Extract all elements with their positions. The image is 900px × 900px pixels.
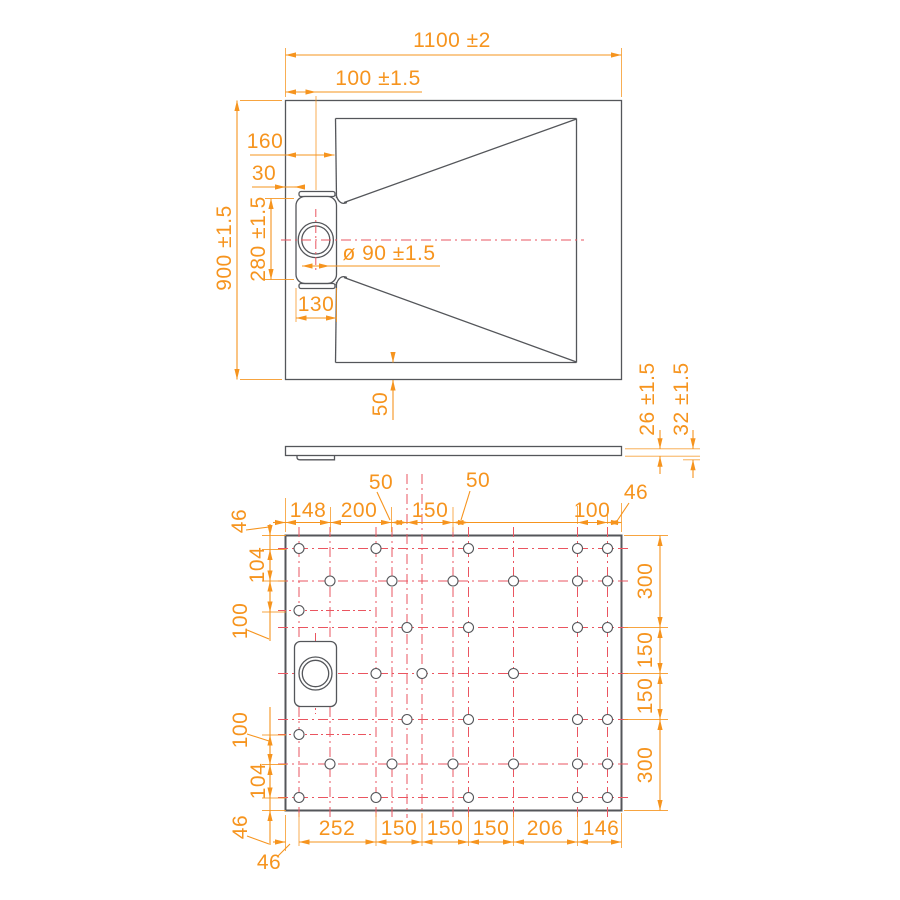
mounting-hole (371, 544, 381, 554)
mounting-hole (603, 715, 613, 725)
dim-label: 104 (247, 763, 270, 800)
dim-label: 150 (634, 632, 657, 669)
dim-label: 146 (583, 817, 620, 840)
dim-label-drain-offset: 100 ±1.5 (335, 67, 421, 90)
left-dimension-chain: 46 104 100 100 104 46 (228, 509, 286, 845)
mounting-hole (603, 793, 613, 803)
mounting-hole (448, 759, 458, 769)
slope-diagonal-top (344, 119, 577, 203)
mounting-hole (371, 669, 381, 679)
dim-label-drain-diameter: ø 90 ±1.5 (342, 242, 435, 265)
dim-label: 100 (574, 499, 611, 522)
dim-label: 150 (634, 678, 657, 715)
mounting-hole (325, 759, 335, 769)
dim-label-recess-height: 280 ±1.5 (247, 196, 270, 282)
tray-profile (286, 447, 622, 456)
mounting-hole (387, 759, 397, 769)
mounting-hole (464, 623, 474, 633)
technical-drawing-canvas: 1100 ±2 100 ±1.5 160 30 900 ±1.5 280 ±1.… (0, 0, 900, 900)
dim-label-offset-callout: 50 (466, 469, 490, 492)
dim-label: 150 (412, 499, 449, 522)
dim-label-corner-margin: 46 (257, 851, 281, 874)
dim-label-offset-callout: 50 (369, 471, 393, 494)
top-dimension-chain: 148 200 150 100 50 50 46 (273, 469, 648, 532)
mounting-hole (371, 793, 381, 803)
mounting-hole (325, 576, 335, 586)
dim-label: 150 (381, 817, 418, 840)
bottom-view: 148 200 150 100 50 50 46 (228, 469, 668, 874)
dim-label-bottom-border: 50 (369, 392, 392, 416)
right-dimension-chain: 300 150 150 300 (624, 536, 668, 811)
mounting-hole (294, 730, 304, 740)
dim-label: 46 (228, 509, 251, 533)
dim-label: 46 (229, 815, 252, 839)
dim-label-recess-width: 130 (298, 293, 335, 316)
basin-left-edge-upper (336, 119, 337, 199)
mounting-hole (402, 623, 412, 633)
dim-label: 150 (427, 817, 464, 840)
dim-label: 100 (229, 712, 252, 749)
mounting-hole (509, 576, 519, 586)
mounting-hole (573, 544, 583, 554)
bottom-dimension-chain: 252 150 150 150 206 146 46 (257, 813, 622, 874)
dim-label: 100 (229, 603, 252, 640)
dim-label-rim-thickness: 26 ±1.5 (636, 362, 659, 435)
mounting-hole (603, 576, 613, 586)
mounting-hole (402, 715, 412, 725)
mounting-hole (509, 669, 519, 679)
dim-label: 200 (341, 499, 378, 522)
dim-label: 300 (634, 563, 657, 600)
dim-label-overall-width: 1100 ±2 (413, 29, 491, 52)
dim-label-lip-offset: 30 (252, 162, 276, 185)
dim-label: 300 (634, 747, 657, 784)
drain-outlet-outer (299, 657, 332, 690)
drain-top-tab (299, 192, 335, 197)
mounting-hole (464, 793, 474, 803)
dim-label-overall-depth: 900 ±1.5 (213, 205, 236, 291)
drain-bottom-tab (299, 284, 335, 289)
dim-label: 104 (246, 547, 269, 584)
dim-label: 148 (290, 499, 327, 522)
dim-label: 150 (473, 817, 510, 840)
mounting-hole (573, 623, 583, 633)
mounting-hole (294, 606, 304, 616)
slope-diagonal-bottom (344, 278, 577, 363)
dim-label-base-thickness: 32 ±1.5 (670, 362, 693, 435)
mounting-hole (603, 623, 613, 633)
mounting-hole (387, 576, 397, 586)
mounting-hole (294, 793, 304, 803)
mounting-hole (573, 576, 583, 586)
mounting-hole (573, 793, 583, 803)
mounting-hole (294, 544, 304, 554)
dim-label: 252 (319, 817, 356, 840)
dim-label-basin-inset: 160 (247, 130, 284, 153)
dim-label: 206 (527, 817, 564, 840)
mounting-hole (464, 715, 474, 725)
mounting-hole (603, 544, 613, 554)
mounting-hole (573, 715, 583, 725)
mounting-hole (603, 759, 613, 769)
mounting-hole (464, 544, 474, 554)
mounting-hole (573, 759, 583, 769)
dim-label-corner-margin: 46 (624, 481, 648, 504)
drawing-page: 1100 ±2 100 ±1.5 160 30 900 ±1.5 280 ±1.… (0, 0, 900, 900)
mounting-hole (417, 669, 427, 679)
mounting-hole (448, 576, 458, 586)
mounting-hole (509, 759, 519, 769)
top-view: 1100 ±2 100 ±1.5 160 30 900 ±1.5 280 ±1.… (213, 29, 622, 420)
